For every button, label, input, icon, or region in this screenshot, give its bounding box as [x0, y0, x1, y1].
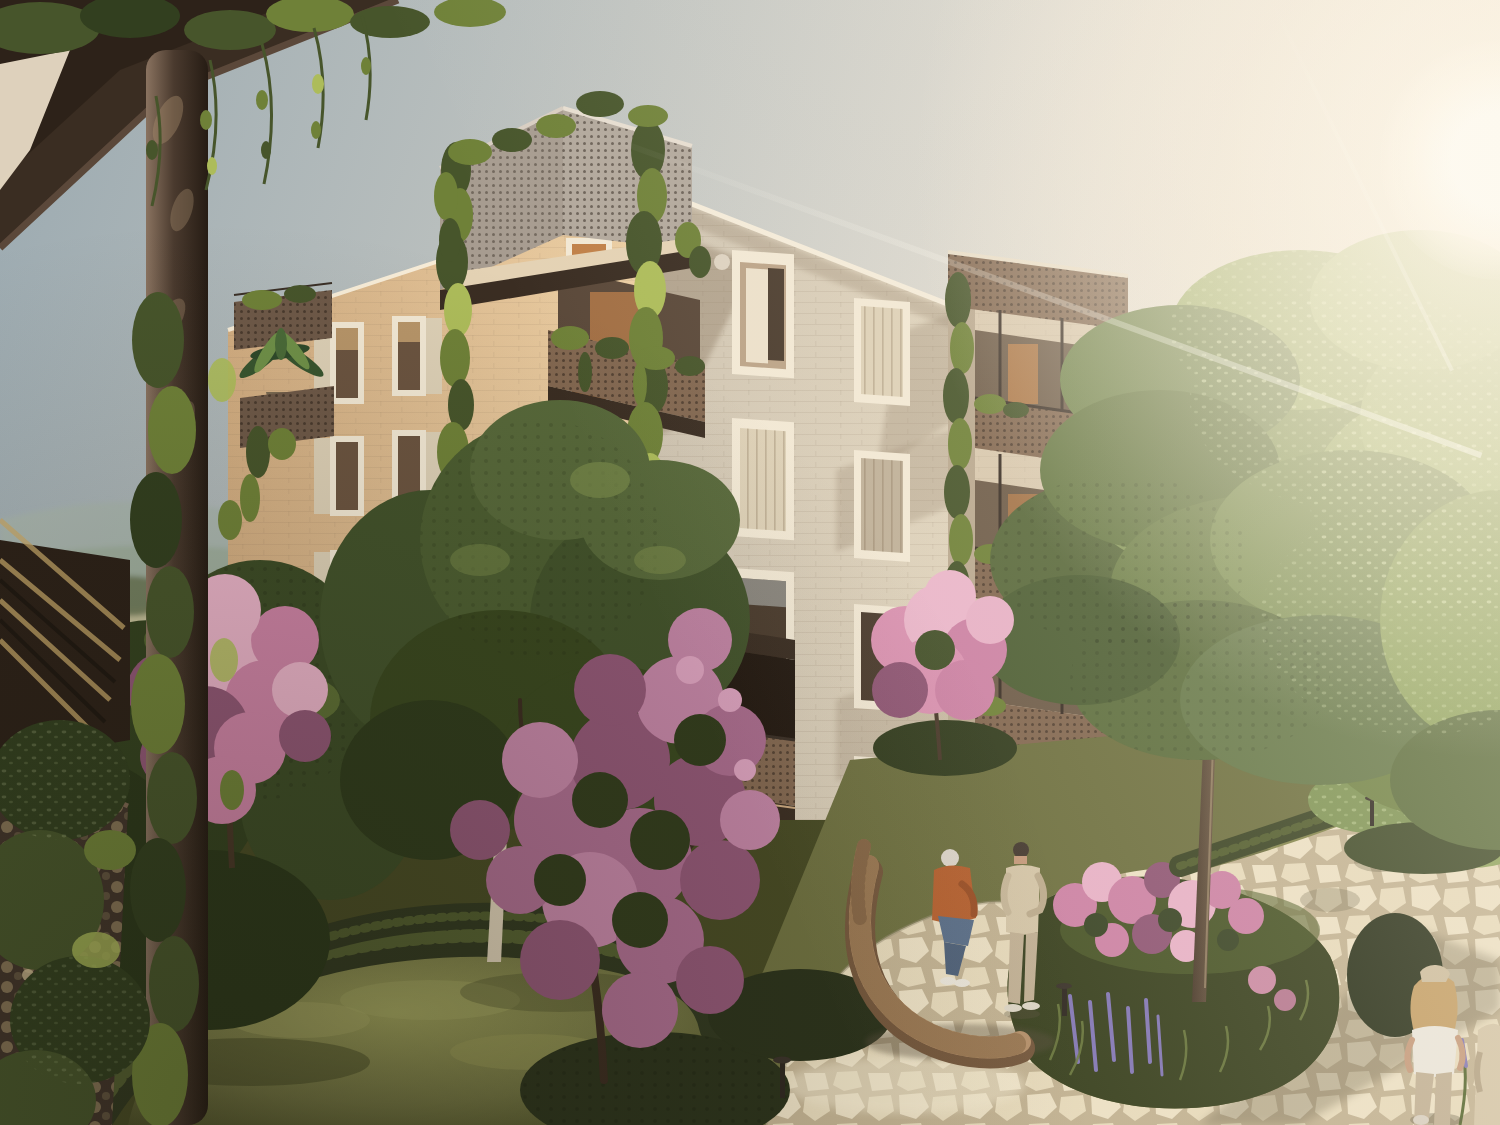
courtyard-scene [0, 0, 1500, 1125]
edge-figure [1474, 1024, 1500, 1125]
architectural-render [0, 0, 1500, 1125]
